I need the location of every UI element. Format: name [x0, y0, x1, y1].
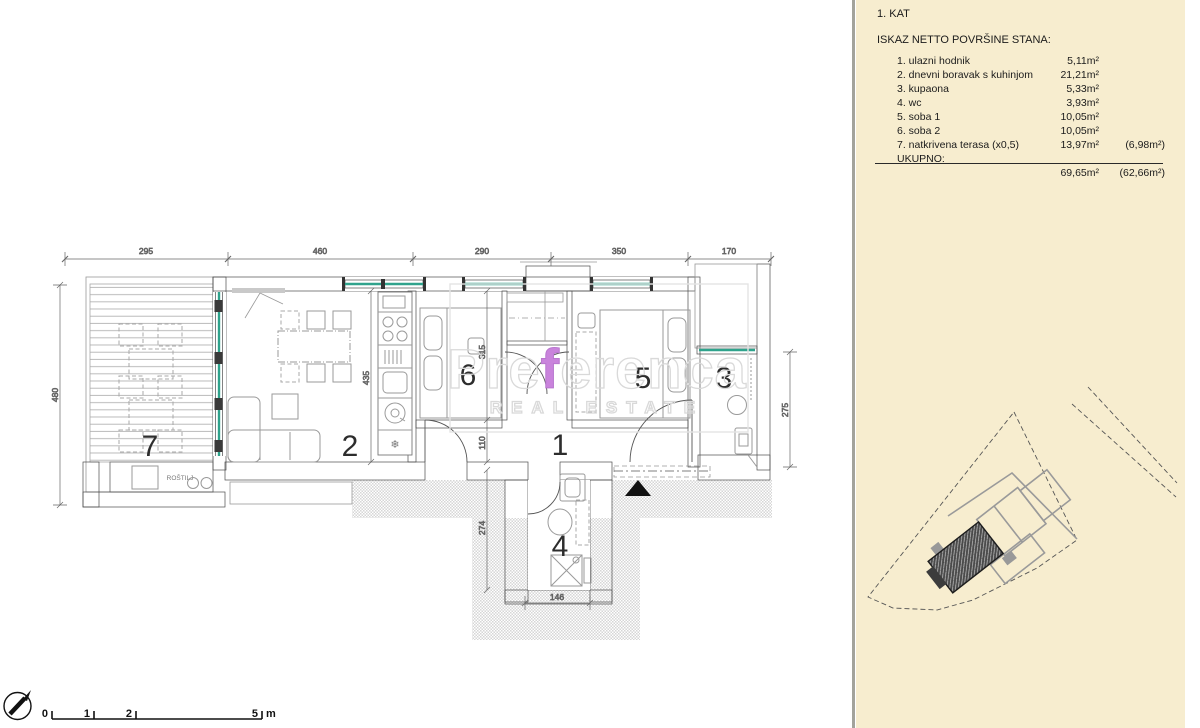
- legend-row: 7. natkrivena terasa (x0,5) 13,97m² (6,9…: [877, 139, 1165, 153]
- site-road-line: [1088, 387, 1177, 483]
- scale-unit: m: [266, 708, 276, 720]
- room-label-1: 1: [552, 429, 569, 462]
- dim-435: 435: [361, 371, 371, 385]
- sofa: [228, 397, 320, 462]
- site-plot-boundary: [868, 412, 1077, 610]
- site-road-line: [1072, 404, 1176, 497]
- room-label-2: 2: [342, 430, 359, 463]
- dining-set: [278, 311, 351, 382]
- total-divider: [875, 163, 1163, 164]
- scale-5: 5: [252, 708, 258, 720]
- window: [342, 277, 426, 291]
- legend-row: 4. wc 3,93m²: [877, 97, 1165, 111]
- site-building: [916, 462, 1086, 618]
- fridge-snowflake-icon: ❄: [390, 439, 399, 451]
- legend-row: 6. soba 2 10,05m²: [877, 125, 1165, 139]
- legend-row: 2. dnevni boravak s kuhinjom 21,21m²: [877, 69, 1165, 83]
- dim-274: 274: [477, 521, 487, 535]
- scale-0: 0: [42, 708, 48, 720]
- apartment-plan: ROŠTILJ: [50, 246, 797, 640]
- watermark-accent-letter: f: [541, 337, 561, 400]
- legend-rows: 1. ulazni hodnik 5,11m² 2. dnevni borava…: [877, 55, 1165, 167]
- dim-350: 350: [612, 246, 626, 256]
- grill-counter: ROŠTILJ: [110, 462, 213, 492]
- north-arrow-icon: [4, 690, 31, 720]
- room-label-7: 7: [142, 430, 159, 463]
- grill-label: ROŠTILJ: [167, 473, 194, 482]
- legend-totals: 69,65m² (62,66m²): [877, 167, 1165, 181]
- legend-row: 1. ulazni hodnik 5,11m²: [877, 55, 1165, 69]
- svg-text:Preferenca: Preferenca: [447, 337, 747, 400]
- dim-275: 275: [780, 403, 790, 417]
- terrace: ROŠTILJ: [83, 277, 225, 507]
- living-room-door: [425, 420, 467, 462]
- dim-480: 480: [50, 388, 60, 402]
- watermark-subtitle: REAL ESTATE: [490, 398, 704, 417]
- total-area: 69,65m²: [1037, 167, 1099, 181]
- dim-290: 290: [475, 246, 489, 256]
- living-room-furniture: [228, 288, 351, 462]
- legend-row: 3. kupaona 5,33m²: [877, 83, 1165, 97]
- kitchen-strip: ❄: [378, 292, 412, 455]
- dim-460: 460: [313, 246, 327, 256]
- total-extra: (62,66m²): [1099, 167, 1165, 181]
- legend-title: ISKAZ NETTO POVRŠINE STANA:: [877, 34, 1051, 46]
- total-label: UKUPNO:: [877, 153, 1037, 167]
- legend-total-row: UKUPNO:: [877, 153, 1165, 167]
- scale-bar: 0 1 2 5 m: [42, 708, 276, 720]
- floorplan-page: ROŠTILJ: [0, 0, 1200, 728]
- dim-170: 170: [722, 246, 736, 256]
- side-table: [272, 394, 298, 419]
- floor-label: 1. KAT: [877, 8, 910, 20]
- pillow: [424, 316, 442, 350]
- dim-295: 295: [139, 246, 153, 256]
- terrace-step: [230, 482, 352, 504]
- room-label-4: 4: [552, 530, 569, 563]
- dim-110: 110: [477, 436, 487, 450]
- scale-2: 2: [126, 708, 132, 720]
- area-legend: 1. KAT ISKAZ NETTO POVRŠINE STANA: 1. ul…: [856, 0, 1185, 250]
- site-plan: [868, 387, 1177, 617]
- dim-146: 146: [550, 592, 564, 602]
- terrace-sliding-door: [213, 292, 226, 456]
- legend-row: 5. soba 1 10,05m²: [877, 111, 1165, 125]
- scale-1: 1: [84, 708, 90, 720]
- watermark: Preferenca REAL ESTATE: [447, 284, 748, 432]
- pillow: [424, 356, 442, 390]
